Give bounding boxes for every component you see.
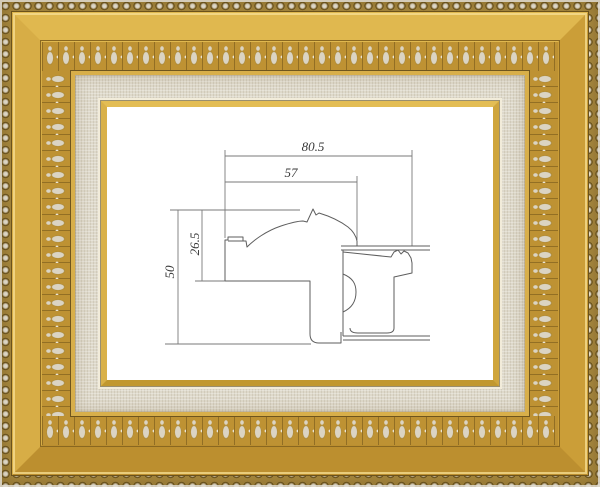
moulding-profile-right [341,246,430,340]
moulding-cross-section-drawing: 80.5 57 26.5 50 [107,107,493,380]
ornament-strip-right [529,71,558,416]
dim-label-overall-width: 80.5 [302,139,325,154]
framed-product-photo: 80.5 57 26.5 50 [0,0,600,487]
dim-label-face-width: 57 [285,165,299,180]
ornament-strip-top [42,42,558,71]
ornament-strip-bottom [42,416,558,445]
dim-label-face-height: 26.5 [187,232,202,255]
drawing-paper: 80.5 57 26.5 50 [107,107,493,380]
dim-label-overall-height: 50 [162,265,177,279]
moulding-profile-left [225,209,357,343]
ornament-strip-left [42,71,71,416]
